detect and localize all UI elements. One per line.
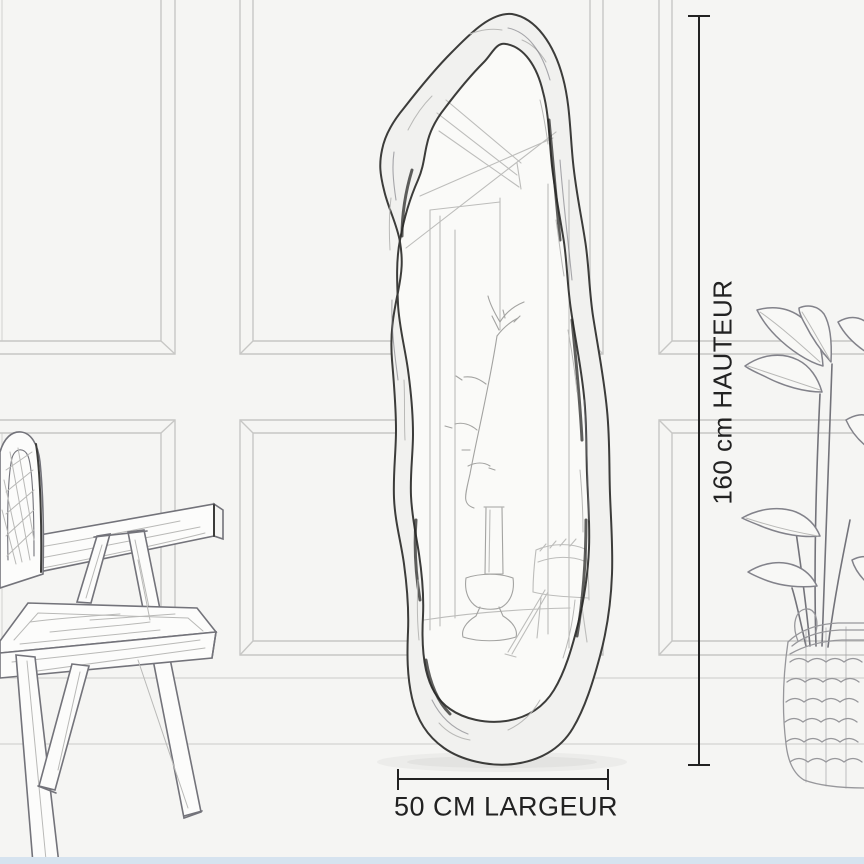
bottom-accent-strip [0,857,864,864]
mirror-sketch [380,14,612,765]
product-dimension-illustration: 160 cm HAUTEUR 50 CM LARGEUR [0,0,864,864]
plant-sketch [742,306,864,647]
chair-sketch [0,432,223,864]
width-dimension-line [398,769,608,790]
basket-sketch [784,609,864,788]
width-dimension-label: 50 CM LARGEUR [394,792,618,823]
height-dimension-label: 160 cm HAUTEUR [708,279,739,504]
